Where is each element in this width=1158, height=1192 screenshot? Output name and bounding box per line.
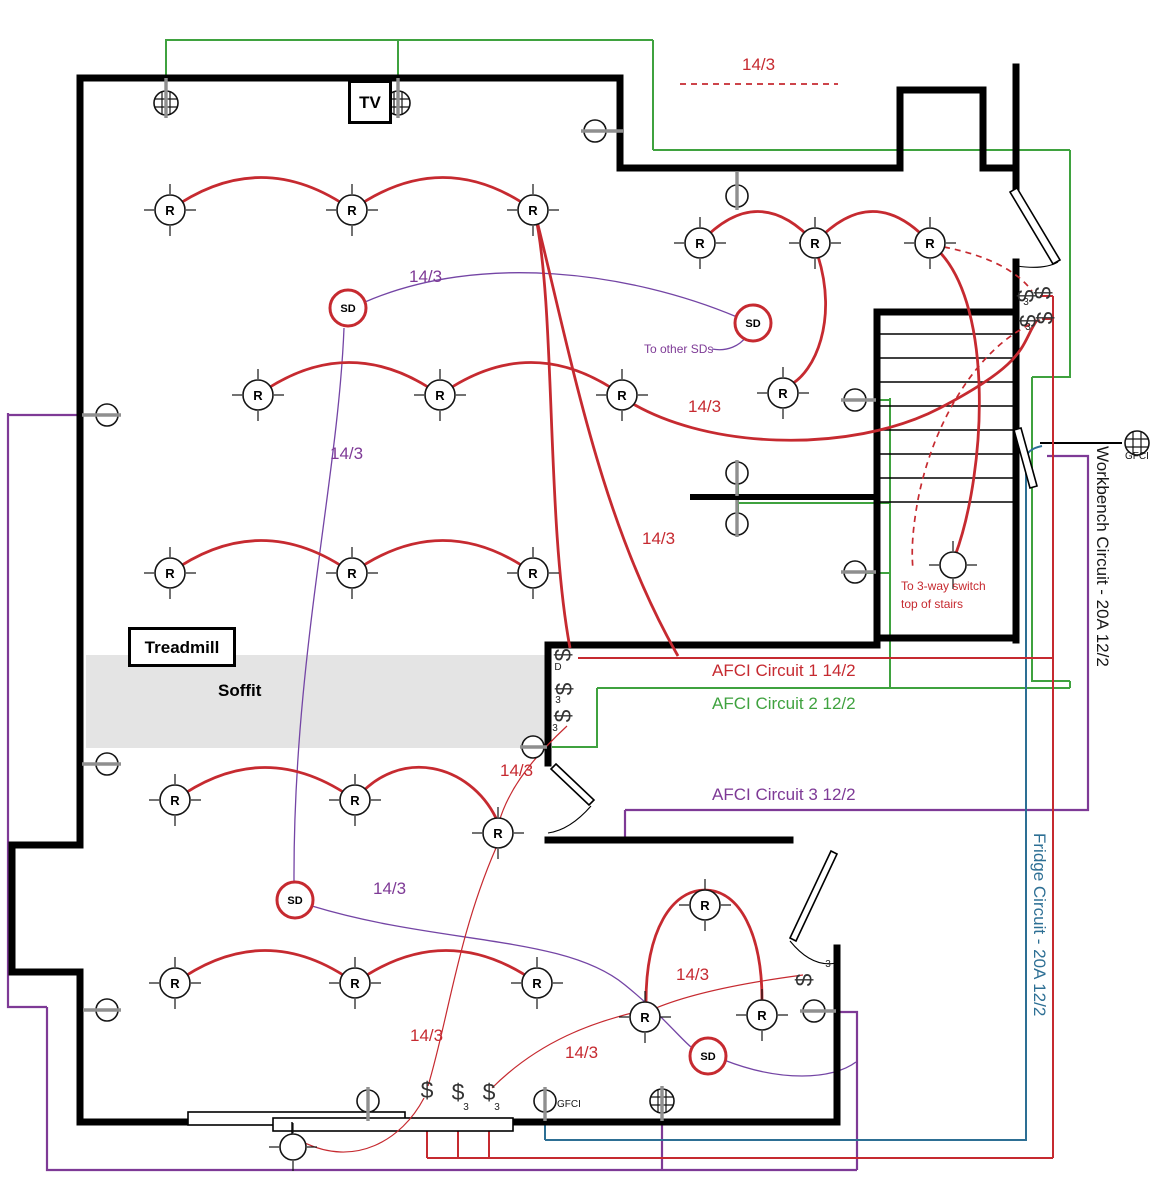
circuit-label-afci1: AFCI Circuit 1 14/2	[712, 662, 856, 679]
svg-text:R: R	[253, 388, 263, 403]
wire-label: 14/3	[330, 445, 363, 462]
note-three-way-1: To 3-way switch	[901, 580, 986, 592]
svg-text:R: R	[170, 793, 180, 808]
svg-text:$: $	[550, 709, 576, 722]
svg-text:SD: SD	[700, 1051, 715, 1063]
svg-text:3: 3	[825, 959, 831, 970]
wire-label: 14/3	[676, 966, 709, 983]
soffit-label: Soffit	[218, 682, 261, 699]
svg-text:SD: SD	[287, 895, 302, 907]
svg-text:R: R	[532, 976, 542, 991]
svg-text:$: $	[1030, 286, 1056, 299]
wiring-diagram: R R R R R R R R R R R R R R R R R R R R …	[0, 0, 1158, 1192]
svg-text:R: R	[778, 386, 788, 401]
svg-text:R: R	[350, 976, 360, 991]
exterior-walls	[12, 67, 1016, 1122]
wire-label-legend: 14/3	[742, 56, 775, 73]
circuit-label-afci3: AFCI Circuit 3 12/2	[712, 786, 856, 803]
window	[188, 1112, 513, 1131]
wire-light-arcs-red	[170, 84, 1040, 1152]
svg-text:R: R	[350, 793, 360, 808]
treadmill-label: Treadmill	[145, 639, 220, 656]
tv-label: TV	[359, 94, 381, 111]
svg-text:R: R	[528, 566, 538, 581]
svg-text:R: R	[695, 236, 705, 251]
doors	[548, 188, 1060, 964]
svg-text:$: $	[1032, 311, 1058, 324]
svg-text:R: R	[493, 826, 503, 841]
wire-label: 14/3	[688, 398, 721, 415]
svg-text:3: 3	[463, 1102, 469, 1113]
wire-label: 14/3	[500, 762, 533, 779]
svg-text:R: R	[165, 203, 175, 218]
svg-text:R: R	[700, 898, 710, 913]
wire-label: 14/3	[565, 1044, 598, 1061]
treadmill-label-box: Treadmill	[128, 627, 236, 667]
svg-text:R: R	[617, 388, 627, 403]
svg-text:R: R	[347, 203, 357, 218]
note-three-way-2: top of stairs	[901, 598, 963, 610]
svg-text:$: $	[421, 1077, 434, 1103]
svg-text:3: 3	[552, 723, 558, 734]
wire-label: 14/3	[642, 530, 675, 547]
wire-label: 14/3	[373, 880, 406, 897]
svg-text:SD: SD	[340, 303, 355, 315]
svg-text:R: R	[528, 203, 538, 218]
floor-plan-svg: R R R R R R R R R R R R R R R R R R R R …	[0, 0, 1158, 1192]
svg-text:R: R	[810, 236, 820, 251]
gfci-label-bottom: GFCI	[557, 1100, 581, 1110]
svg-text:$: $	[791, 973, 817, 986]
circuit-label-workbench: Workbench Circuit - 20A 12/2	[1094, 446, 1111, 667]
tv-label-box: TV	[348, 80, 392, 124]
wire-label: 14/3	[409, 268, 442, 285]
svg-text:R: R	[435, 388, 445, 403]
ceiling-lights	[269, 541, 977, 1171]
svg-text:3: 3	[494, 1102, 500, 1113]
outlets	[82, 78, 1149, 1121]
svg-text:SD: SD	[745, 318, 760, 330]
svg-text:R: R	[640, 1010, 650, 1025]
svg-text:3: 3	[1023, 297, 1029, 308]
gfci-label-right: GFCI	[1125, 452, 1149, 462]
svg-text:R: R	[925, 236, 935, 251]
circuit-label-afci2: AFCI Circuit 2 12/2	[712, 695, 856, 712]
svg-text:$: $	[551, 682, 577, 695]
svg-text:$: $	[550, 648, 576, 661]
svg-text:R: R	[347, 566, 357, 581]
svg-text:D: D	[554, 662, 561, 673]
wire-label: 14/3	[410, 1027, 443, 1044]
circuit-label-fridge: Fridge Circuit - 20A 12/2	[1031, 833, 1048, 1016]
svg-text:3: 3	[1025, 322, 1031, 333]
svg-text:R: R	[165, 566, 175, 581]
svg-text:R: R	[757, 1008, 767, 1023]
soffit-band	[86, 655, 548, 748]
recessed-lights	[144, 184, 956, 1043]
svg-text:3: 3	[555, 695, 561, 706]
svg-text:R: R	[170, 976, 180, 991]
note-to-other-sds: To other SDs	[644, 343, 713, 355]
